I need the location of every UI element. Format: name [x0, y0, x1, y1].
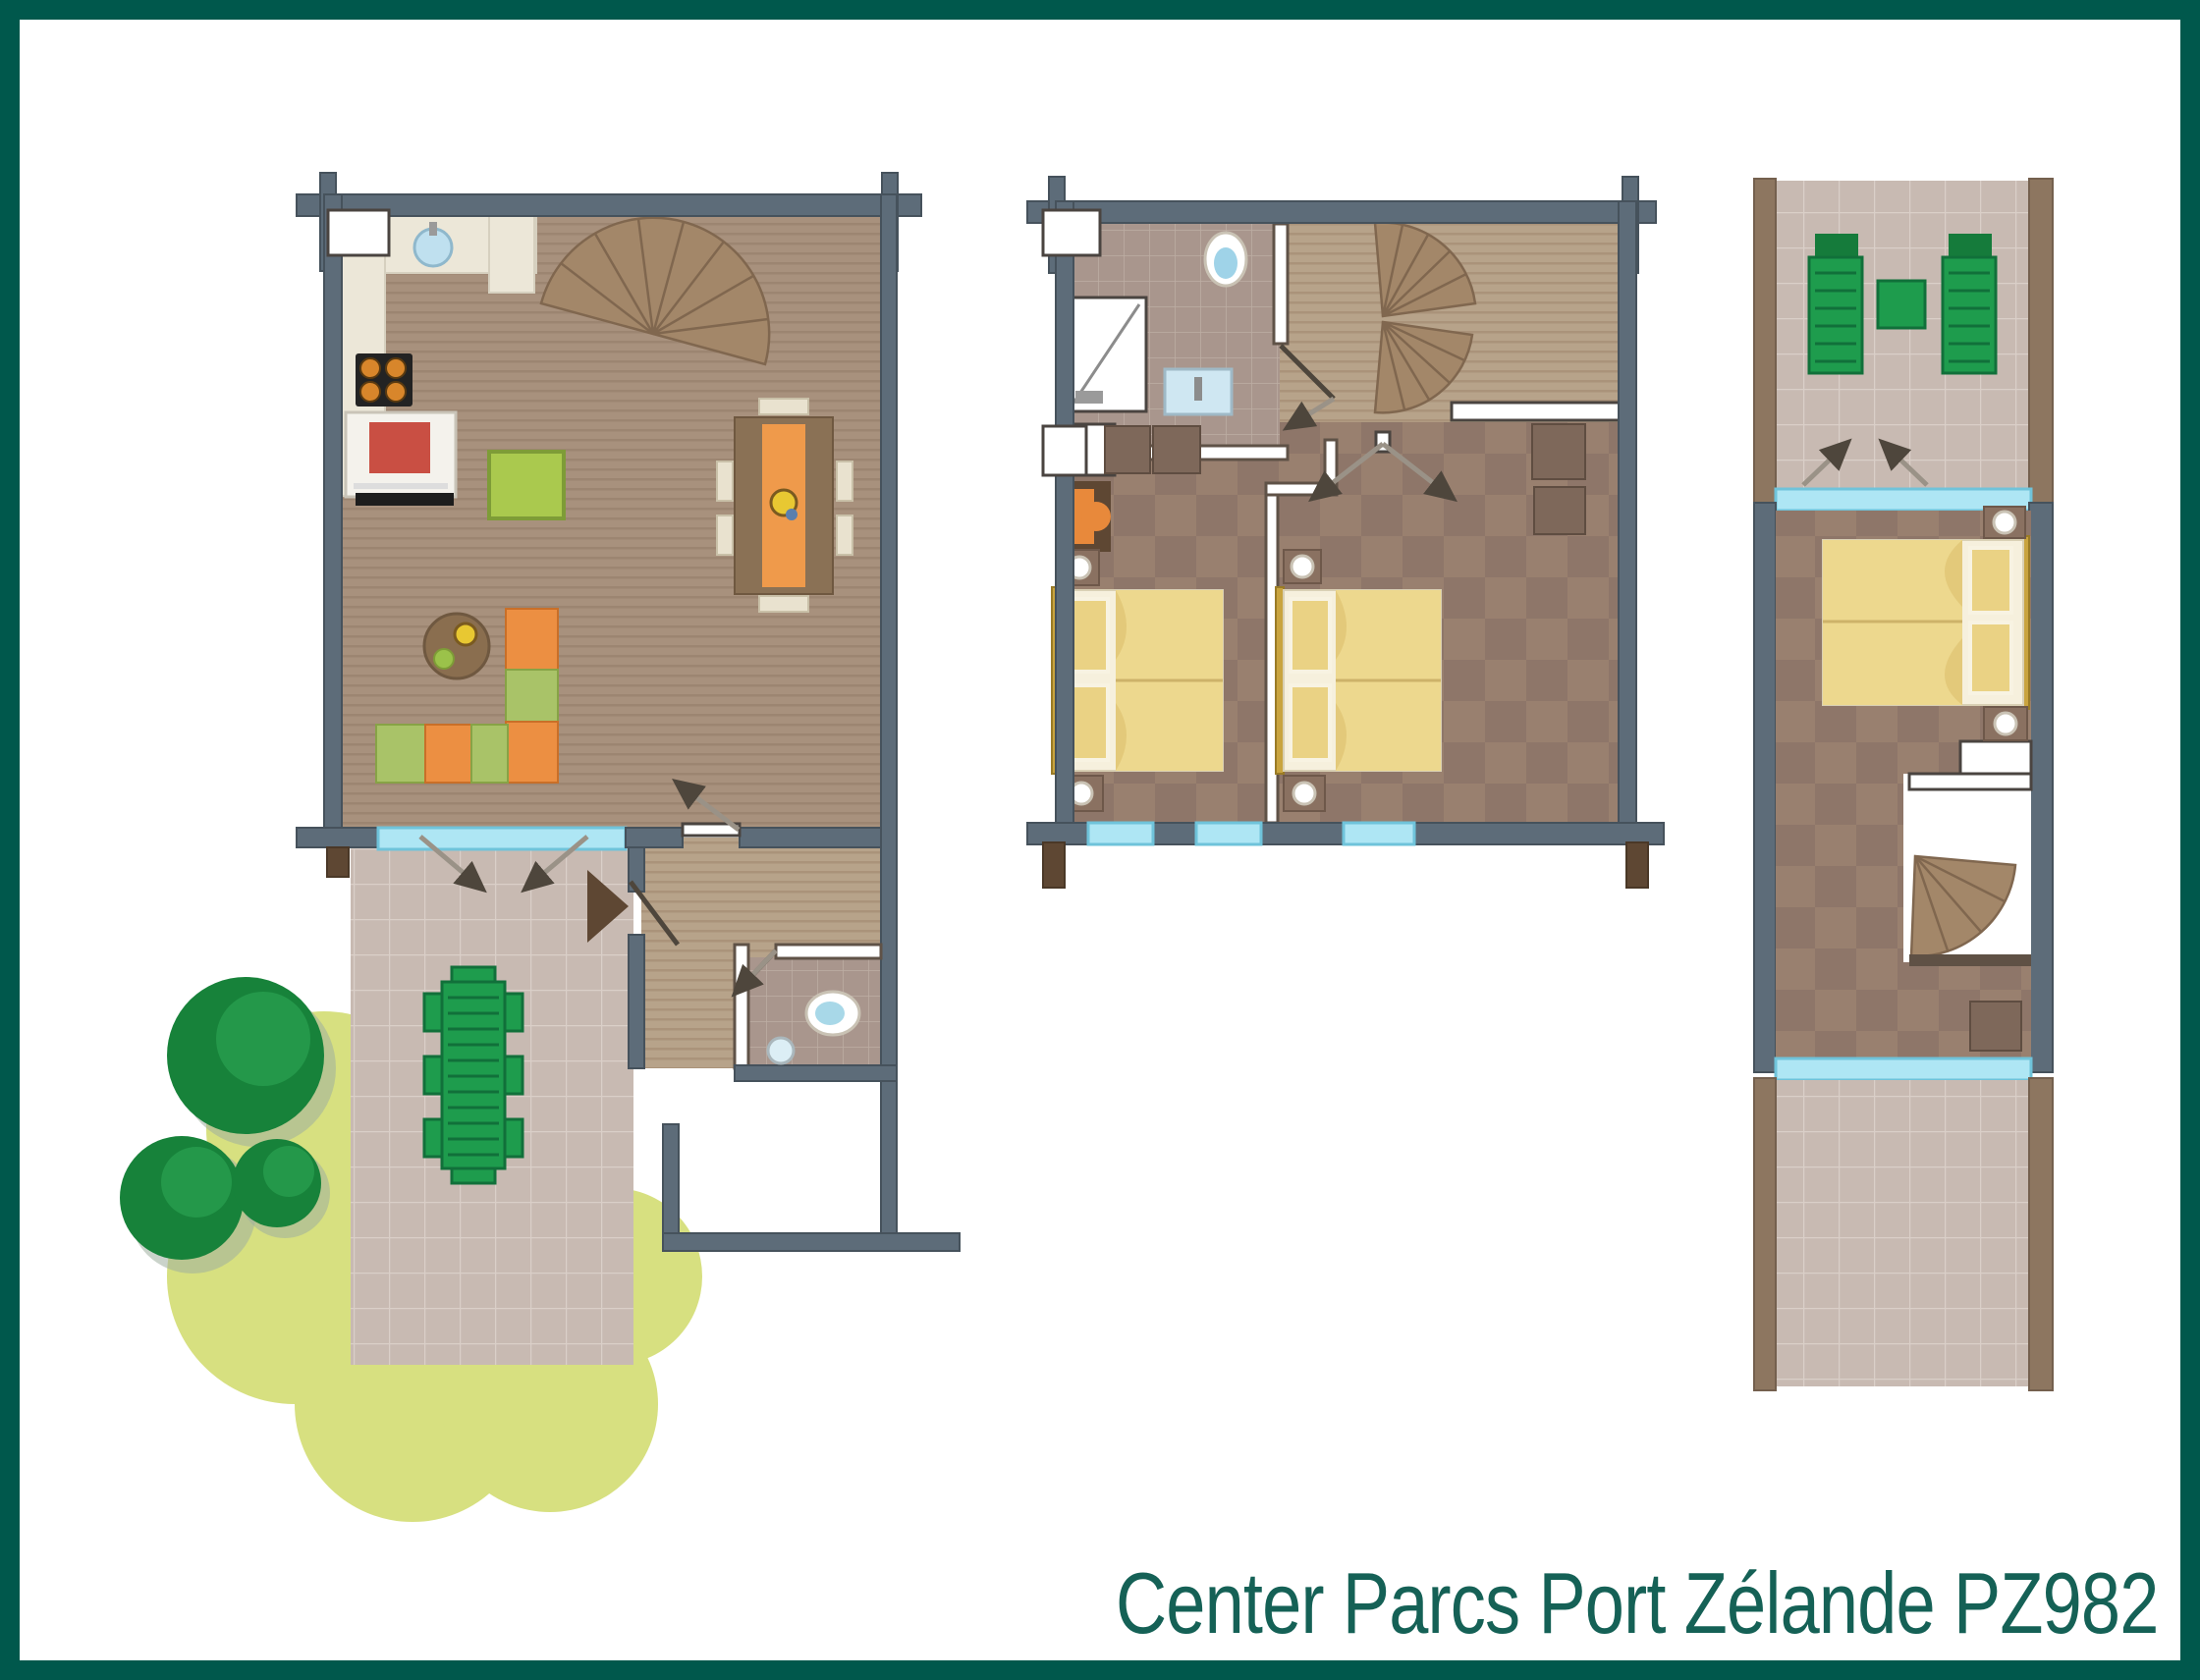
tree-icons: [120, 977, 336, 1274]
floorplan-drawing: [0, 0, 2200, 1680]
first-floor-plan: [1027, 177, 1664, 888]
roof-terrace-floor: [1776, 1080, 2031, 1386]
stair-shelf: [1452, 403, 1621, 420]
kitchen-window: [328, 210, 389, 255]
stair-wall: [1909, 954, 2031, 966]
double-bed-icon: [1276, 587, 1441, 774]
side-table-icon: [489, 452, 564, 518]
terrace-sliding-door: [1776, 1058, 2031, 1080]
stove-icon: [356, 353, 412, 406]
ground-floor-plan: [120, 173, 960, 1522]
side-window: [1043, 426, 1086, 475]
double-bed-icon: [1823, 536, 2029, 709]
shower-icon: [1068, 298, 1146, 411]
coffee-table-icon: [424, 614, 489, 678]
sun-lounger-icon: [1809, 234, 1862, 373]
bathroom-window: [1043, 210, 1100, 255]
dining-table-icon: [717, 399, 852, 612]
floorplan-page: Center Parcs Port Zélande PZ982: [0, 0, 2200, 1680]
sun-lounger-icon: [1943, 234, 1996, 373]
wardrobe-icon: [1970, 1002, 2021, 1051]
top-floor-plan: [1754, 179, 2053, 1390]
bedroom-window: [1196, 823, 1261, 844]
double-bed-icon: [1052, 587, 1223, 774]
washbasin-icon: [1165, 369, 1232, 414]
oven-icon: [346, 412, 456, 506]
bedroom-window: [1088, 823, 1153, 844]
plan-caption: Center Parcs Port Zélande PZ982: [1116, 1560, 2159, 1647]
closet: [1960, 741, 2031, 775]
toilet-icon-first: [1205, 233, 1246, 286]
balcony-table-icon: [1878, 281, 1925, 328]
garden-dining-set-icon: [424, 967, 522, 1183]
bedroom-window: [1344, 823, 1414, 844]
